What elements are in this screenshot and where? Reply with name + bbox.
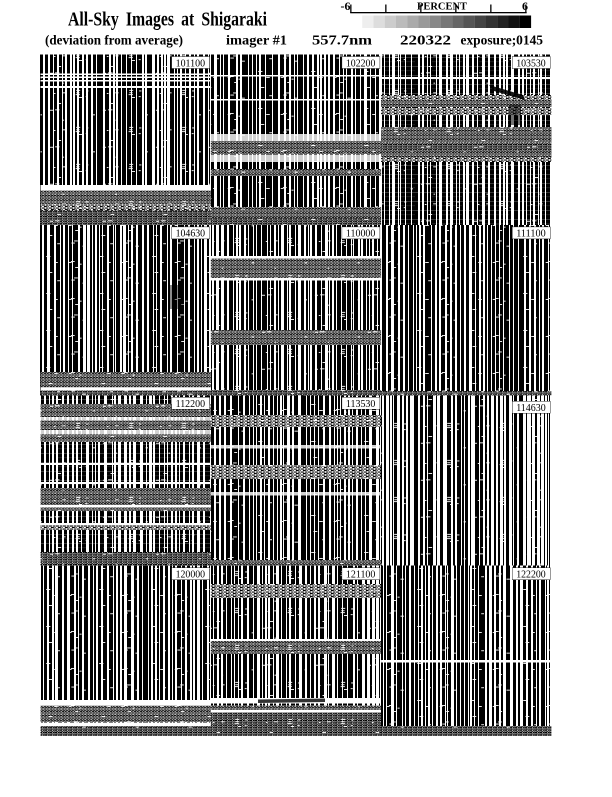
svg-text:114630: 114630 xyxy=(516,403,546,414)
svg-text:6: 6 xyxy=(522,0,528,13)
svg-text:120000: 120000 xyxy=(176,570,206,581)
svg-text:102200: 102200 xyxy=(346,58,376,69)
svg-text:110000: 110000 xyxy=(346,229,376,240)
svg-text:PERCENT: PERCENT xyxy=(417,2,467,13)
svg-text:exposure;0145: exposure;0145 xyxy=(461,33,544,48)
svg-text:113530: 113530 xyxy=(346,399,376,410)
svg-text:220322: 220322 xyxy=(400,33,451,48)
svg-text:101100: 101100 xyxy=(176,58,206,69)
svg-text:imager #1: imager #1 xyxy=(226,33,287,48)
svg-text:121100: 121100 xyxy=(346,570,376,581)
svg-text:112200: 112200 xyxy=(176,399,206,410)
svg-text:All-Sky Images at Shigaraki: All-Sky Images at Shigaraki xyxy=(68,9,267,31)
svg-text:104630: 104630 xyxy=(176,229,206,240)
svg-text:(deviation from average): (deviation from average) xyxy=(45,33,183,48)
svg-text:103530: 103530 xyxy=(516,58,546,69)
svg-text:557.7nm: 557.7nm xyxy=(312,33,372,48)
svg-text:111100: 111100 xyxy=(516,229,546,240)
svg-text:122200: 122200 xyxy=(516,570,546,581)
svg-text:-6: -6 xyxy=(341,0,351,13)
